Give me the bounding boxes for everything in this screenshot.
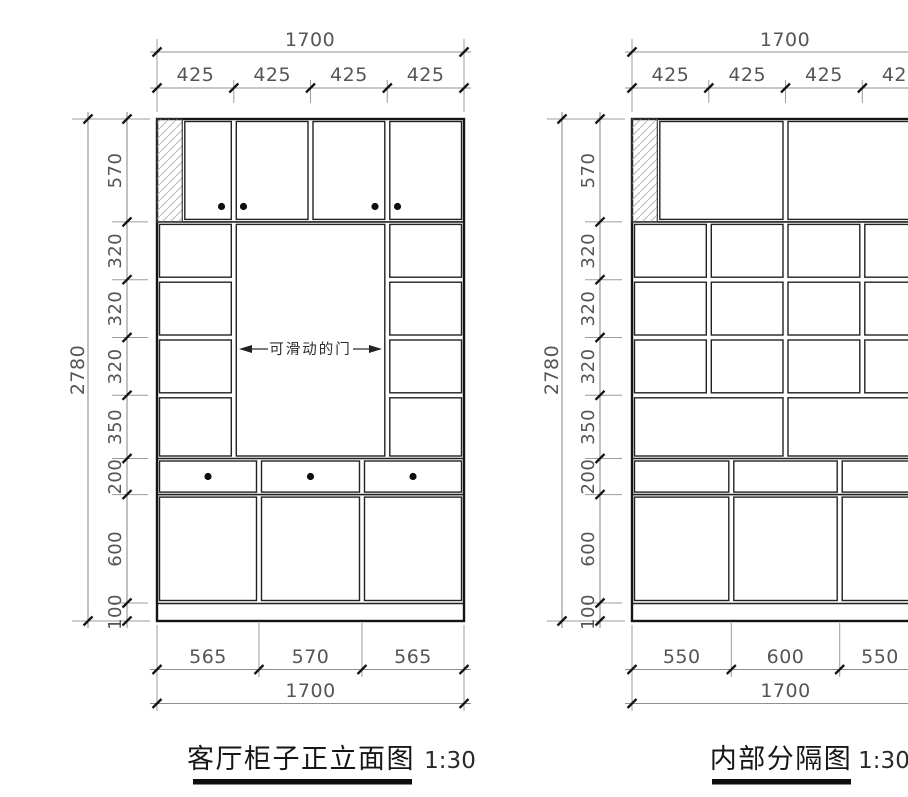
cabinet-cell bbox=[865, 340, 908, 393]
drawing-scale: 1:30 bbox=[424, 748, 476, 774]
dim-label: 320 bbox=[578, 291, 599, 327]
dim-label: 600 bbox=[578, 531, 599, 567]
dim-label: 425 bbox=[728, 64, 766, 86]
cabinet-cell bbox=[711, 340, 783, 393]
dim-label-overall-width: 1700 bbox=[285, 29, 335, 51]
drawer-front bbox=[635, 461, 729, 492]
sliding-door-note: 可滑动的门 bbox=[269, 341, 352, 358]
cabinet-cell bbox=[365, 497, 462, 600]
dim-label: 200 bbox=[578, 459, 599, 495]
dim-label: 320 bbox=[105, 233, 126, 269]
dim-label: 600 bbox=[767, 646, 805, 668]
right-cabinet-body bbox=[632, 119, 908, 621]
cabinet-cell bbox=[788, 122, 908, 220]
cabinet-cell bbox=[711, 224, 783, 277]
dim-label: 550 bbox=[861, 646, 899, 668]
drawer-front bbox=[734, 461, 837, 492]
door-knob bbox=[240, 203, 247, 210]
cabinet-cell bbox=[160, 398, 232, 456]
dim-label: 600 bbox=[105, 531, 126, 567]
cabinet-cell bbox=[390, 340, 462, 393]
dim-label: 570 bbox=[578, 153, 599, 189]
door-knob bbox=[394, 203, 401, 210]
cabinet-cell bbox=[635, 224, 707, 277]
sliding-door-area bbox=[236, 224, 384, 456]
cabinet-cell bbox=[660, 122, 783, 220]
dim-label: 425 bbox=[652, 64, 690, 86]
side-panel-hatch bbox=[632, 119, 657, 222]
cabinet-cell bbox=[865, 282, 908, 335]
dim-label: 100 bbox=[105, 594, 126, 630]
dim-label: 350 bbox=[105, 409, 126, 445]
cad-canvas: 1700 425 425 425 425 2780 bbox=[0, 0, 908, 797]
cabinet-cell bbox=[711, 282, 783, 335]
title-underline bbox=[712, 779, 851, 785]
drawer-knob bbox=[409, 473, 416, 480]
cabinet-cell bbox=[635, 398, 784, 456]
cabinet-cell bbox=[160, 282, 232, 335]
cabinet-cell bbox=[788, 224, 860, 277]
cabinet-cell bbox=[865, 224, 908, 277]
cabinet-cell bbox=[390, 282, 462, 335]
dim-label-overall-width: 1700 bbox=[760, 29, 810, 51]
dim-label: 425 bbox=[177, 64, 215, 86]
dim-label: 570 bbox=[105, 153, 126, 189]
dim-label: 100 bbox=[578, 594, 599, 630]
side-panel-hatch bbox=[157, 119, 182, 222]
door-knob bbox=[371, 203, 378, 210]
dim-label: 320 bbox=[578, 348, 599, 384]
dim-label: 425 bbox=[253, 64, 291, 86]
cabinet-cell bbox=[160, 224, 232, 277]
cabinet-cell bbox=[734, 497, 837, 600]
dim-label: 570 bbox=[292, 646, 330, 668]
door-knob bbox=[218, 203, 225, 210]
cabinet-cell bbox=[635, 340, 707, 393]
cabinet-cell bbox=[842, 497, 908, 600]
dim-label: 200 bbox=[105, 459, 126, 495]
dim-label-overall-height: 2780 bbox=[541, 345, 563, 395]
cabinet-cell bbox=[262, 497, 360, 600]
door-panel bbox=[236, 122, 308, 220]
drawer-front bbox=[842, 461, 908, 492]
cabinet-cell bbox=[788, 340, 860, 393]
dim-label: 565 bbox=[394, 646, 432, 668]
cabinet-cell bbox=[390, 398, 462, 456]
dim-label: 565 bbox=[189, 646, 227, 668]
dim-label-bottom-total: 1700 bbox=[760, 680, 810, 702]
dim-label: 320 bbox=[578, 233, 599, 269]
drawer-knob bbox=[307, 473, 314, 480]
cabinet-cell bbox=[635, 497, 729, 600]
drawing-scale: 1:30 bbox=[858, 748, 908, 774]
cabinet-cell bbox=[390, 224, 462, 277]
dim-label: 425 bbox=[330, 64, 368, 86]
dim-label: 320 bbox=[105, 348, 126, 384]
title-underline bbox=[193, 779, 412, 785]
cabinet-cell bbox=[635, 282, 707, 335]
cabinet-cell bbox=[788, 398, 908, 456]
cabinet-cell bbox=[160, 340, 232, 393]
dim-label-bottom-total: 1700 bbox=[285, 680, 335, 702]
dim-label: 425 bbox=[882, 64, 908, 86]
dim-label: 320 bbox=[105, 291, 126, 327]
drawing-title: 客厅柜子正立面图 bbox=[187, 744, 415, 775]
dim-label: 350 bbox=[578, 409, 599, 445]
drawing-sheet: 1700 425 425 425 425 2780 bbox=[0, 0, 908, 797]
drawing-title: 内部分隔图 bbox=[710, 744, 853, 775]
drawer-knob bbox=[204, 473, 211, 480]
dim-label: 425 bbox=[407, 64, 445, 86]
dim-label: 550 bbox=[663, 646, 701, 668]
dim-label: 425 bbox=[805, 64, 843, 86]
cabinet-cell bbox=[160, 497, 257, 600]
cabinet-cell bbox=[788, 282, 860, 335]
dim-label-overall-height: 2780 bbox=[67, 345, 89, 395]
